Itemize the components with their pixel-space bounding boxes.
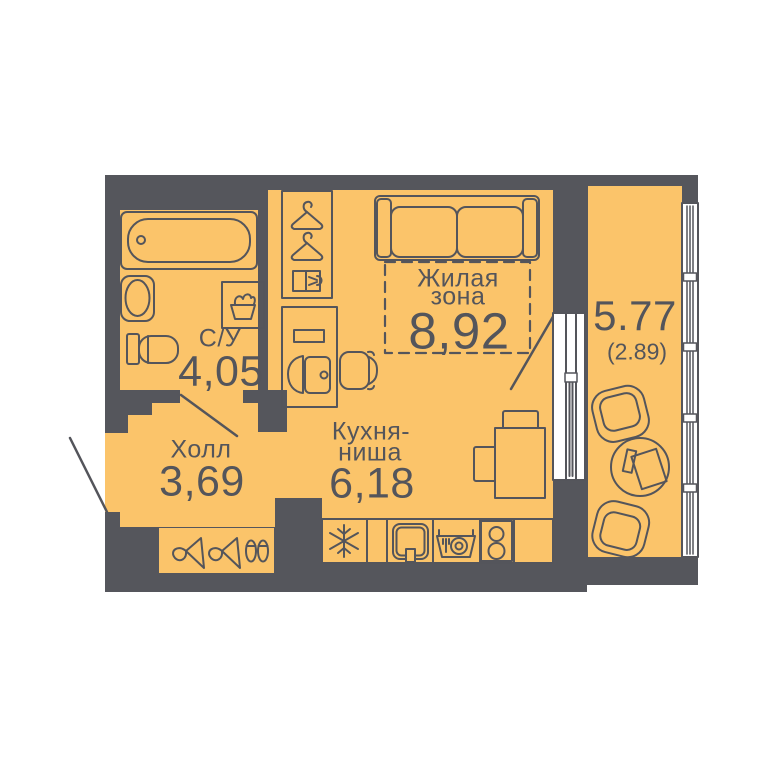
kitchen-area: 6,18 xyxy=(329,463,415,506)
floorplan-canvas: С/У 4,05 Холл 3,69 Кухня- ниша 6,18 Жила… xyxy=(0,0,768,768)
hall-wall-notch-1 xyxy=(105,390,152,415)
living-area: 8,92 xyxy=(408,306,509,357)
kitchen-counter-floor xyxy=(322,519,553,563)
hall-area: 3,69 xyxy=(159,461,245,504)
kitchen-wall-pier xyxy=(275,498,322,592)
shoe-closet-niche xyxy=(159,528,274,573)
bathroom-area: 4,05 xyxy=(178,351,264,394)
hall-wall-notch-2 xyxy=(105,415,128,433)
entrance-door-swing xyxy=(70,438,107,512)
balcony-area: 5.77 xyxy=(593,295,677,337)
balcony-area-secondary: (2.89) xyxy=(607,341,667,364)
balcony-floor xyxy=(588,186,682,557)
entrance-recess xyxy=(105,433,120,512)
hall-wall-stub xyxy=(258,390,287,432)
